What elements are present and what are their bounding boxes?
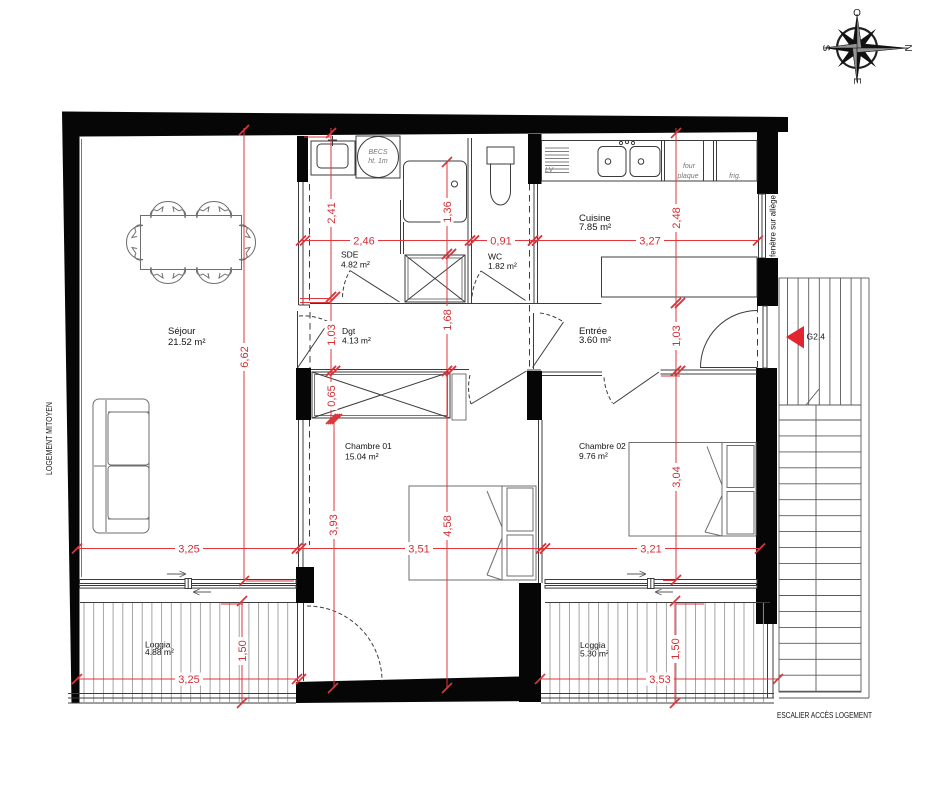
svg-text:ESCALIER ACCÈS LOGEMENT: ESCALIER ACCÈS LOGEMENT	[777, 710, 872, 720]
svg-text:3,53: 3,53	[649, 674, 670, 686]
svg-text:5.30 m²: 5.30 m²	[580, 649, 609, 659]
svg-text:E: E	[851, 78, 862, 85]
svg-text:6,62: 6,62	[239, 346, 251, 367]
svg-text:plaque: plaque	[676, 173, 698, 180]
svg-text:Dgt: Dgt	[342, 326, 356, 336]
svg-text:3,51: 3,51	[408, 544, 429, 556]
svg-text:Chambre 02: Chambre 02	[579, 441, 626, 451]
svg-text:1.82 m²: 1.82 m²	[488, 261, 517, 271]
svg-text:3,04: 3,04	[671, 466, 683, 487]
svg-text:BECS: BECS	[368, 149, 387, 156]
svg-text:1,68: 1,68	[442, 309, 454, 330]
svg-text:SDE: SDE	[341, 250, 359, 260]
svg-text:fenêtre sur allège: fenêtre sur allège	[768, 195, 778, 257]
svg-text:LV: LV	[545, 167, 555, 174]
svg-text:1,50: 1,50	[670, 638, 682, 659]
svg-text:1,50: 1,50	[237, 640, 249, 661]
svg-text:O: O	[853, 8, 861, 19]
svg-text:2,41: 2,41	[326, 202, 338, 223]
svg-text:15.04 m²: 15.04 m²	[345, 452, 379, 462]
svg-text:3,27: 3,27	[639, 236, 660, 248]
svg-text:G2.4: G2.4	[807, 332, 826, 342]
svg-text:3,93: 3,93	[328, 514, 340, 535]
svg-text:WC: WC	[488, 252, 502, 262]
svg-text:1,03: 1,03	[671, 325, 683, 346]
svg-text:3,25: 3,25	[178, 544, 199, 556]
svg-text:9.76 m²: 9.76 m²	[579, 451, 608, 461]
svg-text:3.60 m²: 3.60 m²	[579, 335, 611, 346]
svg-text:7.85 m²: 7.85 m²	[579, 222, 611, 233]
svg-text:Séjour: Séjour	[168, 326, 195, 337]
svg-text:1,36: 1,36	[442, 201, 454, 222]
svg-text:0,65: 0,65	[326, 385, 338, 406]
svg-text:21.52 m²: 21.52 m²	[168, 337, 206, 348]
svg-text:2,46: 2,46	[353, 236, 374, 248]
svg-text:Chambre 01: Chambre 01	[345, 441, 392, 451]
svg-text:3,25: 3,25	[178, 674, 199, 686]
svg-text:1,03: 1,03	[326, 324, 338, 345]
svg-text:four: four	[683, 163, 696, 170]
svg-text:4,58: 4,58	[442, 515, 454, 536]
svg-text:S: S	[820, 45, 831, 52]
svg-text:0,91: 0,91	[490, 236, 511, 248]
svg-text:LOGEMENT MITOYEN: LOGEMENT MITOYEN	[44, 402, 54, 475]
svg-text:ht. 1m: ht. 1m	[368, 158, 388, 165]
svg-text:N: N	[902, 44, 913, 51]
svg-text:frig.: frig.	[729, 173, 741, 180]
svg-text:3,21: 3,21	[640, 544, 661, 556]
svg-text:4.82 m²: 4.82 m²	[341, 260, 370, 270]
svg-text:4.88 m²: 4.88 m²	[145, 647, 174, 657]
svg-text:4.13 m²: 4.13 m²	[342, 336, 371, 346]
svg-text:2,48: 2,48	[671, 207, 683, 228]
